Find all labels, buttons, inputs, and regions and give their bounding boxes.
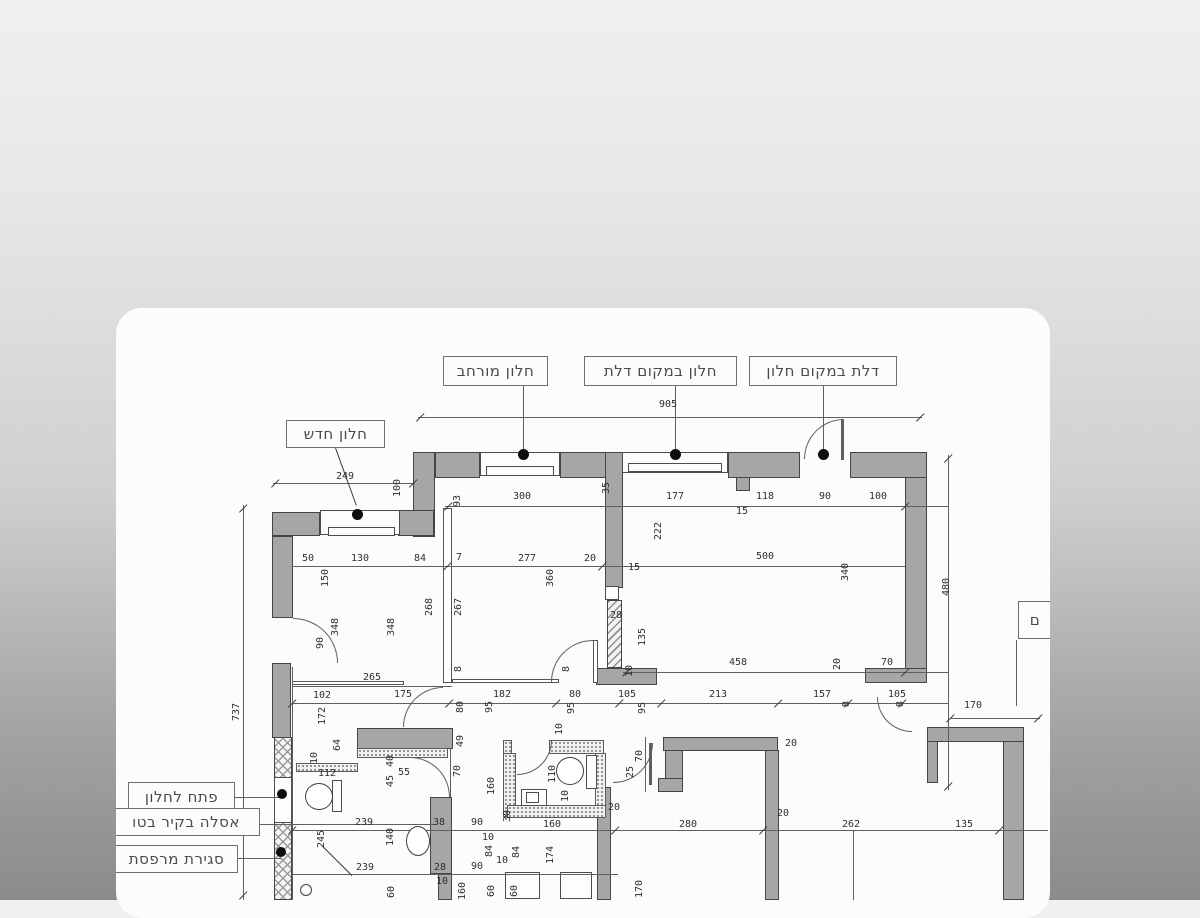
dimension-label: 348 bbox=[331, 618, 341, 636]
dimension-label: 170 bbox=[635, 880, 645, 898]
dimension-label: 90 bbox=[471, 862, 483, 872]
window-or-fixture bbox=[328, 527, 395, 536]
dimension-label: 268 bbox=[425, 598, 435, 616]
dimension-label: 500 bbox=[756, 552, 774, 562]
dimension-label: 10 bbox=[561, 790, 571, 802]
dimension-line bbox=[260, 824, 435, 825]
dimension-label: 80 bbox=[456, 701, 466, 713]
dimension-label: 15 bbox=[736, 507, 748, 517]
dimension-label: 245 bbox=[317, 830, 327, 848]
dimension-label: 28 bbox=[434, 863, 446, 873]
dimension-label: 10 bbox=[436, 877, 448, 887]
dimension-label: 25 bbox=[626, 766, 636, 778]
dimension-label: 265 bbox=[363, 673, 381, 683]
dimension-label: 150 bbox=[321, 569, 331, 587]
dimension-label: 249 bbox=[336, 472, 354, 482]
dimension-label: 360 bbox=[546, 569, 556, 587]
window-or-fixture bbox=[332, 780, 342, 812]
dimension-line bbox=[243, 505, 244, 900]
dimension-line bbox=[1016, 640, 1017, 706]
dimension-label: 60 bbox=[510, 885, 520, 897]
wall-segment bbox=[927, 741, 938, 783]
dimension-label: 49 bbox=[456, 735, 466, 747]
dimension-label: 110 bbox=[548, 765, 558, 783]
dimension-label: 100 bbox=[393, 479, 403, 497]
dimension-label: 135 bbox=[638, 628, 648, 646]
dimension-label: 10 bbox=[555, 723, 565, 735]
dimension-label: 20 bbox=[608, 803, 620, 813]
fixture bbox=[305, 783, 333, 810]
dimension-label: 737 bbox=[232, 703, 242, 721]
dimension-label: 458 bbox=[729, 658, 747, 668]
dimension-label: 10 bbox=[496, 856, 508, 866]
dimension-label: 239 bbox=[356, 863, 374, 873]
dimension-line bbox=[445, 506, 948, 507]
dimension-label: 30 bbox=[503, 810, 513, 822]
dimension-label: 50 bbox=[302, 554, 314, 564]
dimension-label: 277 bbox=[518, 554, 536, 564]
dimension-label: 70 bbox=[635, 750, 645, 762]
dimension-label: 95 bbox=[638, 702, 648, 714]
dimension-label: 8 bbox=[842, 701, 852, 707]
dimension-label: 8 bbox=[454, 666, 464, 672]
dimension-label: 100 bbox=[869, 492, 887, 502]
block-wall bbox=[357, 748, 448, 758]
partition-wall bbox=[292, 681, 404, 685]
wall-segment bbox=[272, 663, 291, 738]
dimension-label: 45 bbox=[386, 775, 396, 787]
dimension-label: 102 bbox=[313, 691, 331, 701]
dimension-label: 90 bbox=[471, 818, 483, 828]
dimension-line bbox=[238, 858, 281, 859]
window-or-fixture bbox=[274, 777, 292, 823]
floor-plan-drawing: 9052491009330017711890100153522215500340… bbox=[116, 308, 1050, 900]
dimension-label: 95 bbox=[567, 702, 577, 714]
dimension-label: 80 bbox=[569, 690, 581, 700]
dimension-line bbox=[235, 797, 281, 798]
wall-segment bbox=[658, 778, 683, 792]
block-wall bbox=[503, 740, 512, 754]
dimension-label: 35 bbox=[602, 482, 612, 494]
dimension-label: 172 bbox=[318, 707, 328, 725]
wall-segment bbox=[435, 452, 480, 478]
dimension-label: 105 bbox=[618, 690, 636, 700]
window-or-fixture bbox=[628, 463, 722, 472]
dimension-label: 90 bbox=[316, 637, 326, 649]
dimension-label: 140 bbox=[386, 828, 396, 846]
dimension-line bbox=[418, 417, 922, 418]
dimension-label: 15 bbox=[628, 563, 640, 573]
dimension-line bbox=[853, 830, 854, 900]
wall-segment bbox=[865, 668, 927, 683]
dimension-label: 222 bbox=[654, 522, 664, 540]
wall-segment bbox=[663, 737, 778, 751]
dimension-label: 20 bbox=[833, 658, 843, 670]
partition-wall bbox=[593, 640, 598, 683]
callout-dot bbox=[818, 449, 829, 460]
wall-segment bbox=[272, 512, 320, 536]
dimension-line bbox=[950, 718, 1040, 719]
dimension-label: 70 bbox=[881, 658, 893, 668]
dimension-line bbox=[523, 386, 524, 452]
dimension-label: 174 bbox=[546, 846, 556, 864]
door-arc bbox=[410, 757, 450, 797]
dimension-label: 182 bbox=[493, 690, 511, 700]
dimension-label: 8 bbox=[562, 666, 572, 672]
dimension-label: 10 bbox=[625, 665, 635, 677]
dimension-label: 160 bbox=[543, 820, 561, 830]
wall-segment bbox=[1003, 741, 1024, 900]
annotation-label: חלון במקום דלת bbox=[584, 356, 737, 386]
dimension-label: 135 bbox=[955, 820, 973, 830]
door-arc bbox=[551, 640, 593, 682]
wall-segment bbox=[736, 477, 750, 491]
wall-segment bbox=[765, 750, 779, 900]
dimension-label: 95 bbox=[485, 701, 495, 713]
dimension-label: 10 bbox=[482, 833, 494, 843]
dimension-label: 28 bbox=[610, 611, 622, 621]
wall-segment bbox=[398, 510, 434, 536]
dimension-label: 60 bbox=[487, 885, 497, 897]
fixture bbox=[300, 884, 312, 896]
annotation-label: סגירת מרפסת bbox=[116, 845, 238, 873]
callout-dot bbox=[276, 847, 286, 857]
dimension-label: 55 bbox=[398, 768, 410, 778]
dimension-line bbox=[450, 748, 451, 798]
dimension-label: 112 bbox=[318, 769, 336, 779]
callout-dot bbox=[670, 449, 681, 460]
dimension-label: 280 bbox=[679, 820, 697, 830]
annotation-label: דלת במקום חלון bbox=[749, 356, 897, 386]
dimension-line bbox=[292, 686, 452, 687]
annotation-label: חלון חדש bbox=[286, 420, 385, 448]
partition-wall bbox=[452, 679, 559, 683]
partition-wall bbox=[443, 508, 452, 683]
dimension-label: 118 bbox=[756, 492, 774, 502]
dimension-label: 20 bbox=[777, 809, 789, 819]
dimension-line bbox=[623, 672, 948, 673]
dimension-label: 348 bbox=[387, 618, 397, 636]
dimension-label: 213 bbox=[709, 690, 727, 700]
dimension-label: 905 bbox=[659, 400, 677, 410]
dimension-label: 267 bbox=[454, 598, 464, 616]
wall-segment bbox=[728, 452, 800, 478]
dimension-label: 84 bbox=[485, 845, 495, 857]
dimension-label: 300 bbox=[513, 492, 531, 502]
wall-segment bbox=[927, 727, 1024, 742]
dimension-label: 38 bbox=[433, 818, 445, 828]
wall-segment bbox=[605, 452, 623, 588]
dimension-label: 60 bbox=[387, 886, 397, 898]
dimension-label: 70 bbox=[453, 765, 463, 777]
dimension-label: 20 bbox=[785, 739, 797, 749]
dimension-label: 93 bbox=[453, 495, 463, 507]
dimension-label: 340 bbox=[841, 563, 851, 581]
dimension-label: 160 bbox=[458, 882, 468, 900]
window-or-fixture bbox=[560, 872, 592, 899]
block-wall bbox=[549, 740, 604, 754]
dimension-label: 20 bbox=[584, 554, 596, 564]
dimension-label: 170 bbox=[964, 701, 982, 711]
window-or-fixture bbox=[586, 755, 597, 789]
dimension-line bbox=[292, 566, 905, 567]
dimension-label: 7 bbox=[456, 553, 462, 563]
dimension-line bbox=[292, 874, 618, 875]
annotation-label: חלון מורחב bbox=[443, 356, 548, 386]
dimension-label: 10 bbox=[310, 752, 320, 764]
dimension-label: 157 bbox=[813, 690, 831, 700]
dimension-label: 262 bbox=[842, 820, 860, 830]
dimension-label: 8 bbox=[896, 701, 906, 707]
dimension-label: 160 bbox=[487, 777, 497, 795]
dimension-label: 40 bbox=[386, 755, 396, 767]
dimension-label: 84 bbox=[512, 846, 522, 858]
window-or-fixture bbox=[605, 586, 619, 600]
wall-segment bbox=[850, 452, 927, 478]
dimension-label: 177 bbox=[666, 492, 684, 502]
dimension-label: 64 bbox=[333, 739, 343, 751]
annotation-label: ם bbox=[1018, 601, 1050, 639]
dimension-label: 175 bbox=[394, 690, 412, 700]
floor-plan-card: 9052491009330017711890100153522215500340… bbox=[116, 308, 1050, 918]
fixture bbox=[556, 757, 584, 785]
wall-segment bbox=[272, 536, 293, 618]
leader-line bbox=[321, 845, 352, 876]
insulated-wall bbox=[274, 737, 292, 778]
dimension-label: 239 bbox=[355, 818, 373, 828]
callout-dot bbox=[277, 789, 287, 799]
dimension-label: 90 bbox=[819, 492, 831, 502]
dimension-line bbox=[292, 830, 1048, 831]
fixture bbox=[406, 826, 430, 856]
dimension-label: 130 bbox=[351, 554, 369, 564]
block-wall bbox=[507, 805, 606, 818]
dimension-label: 480 bbox=[942, 578, 952, 596]
window-or-fixture bbox=[526, 792, 539, 803]
callout-dot bbox=[518, 449, 529, 460]
dimension-line bbox=[675, 386, 676, 452]
window-or-fixture bbox=[486, 466, 554, 476]
wall-segment bbox=[665, 750, 683, 779]
dimension-line bbox=[948, 455, 949, 790]
callout-dot bbox=[352, 509, 363, 520]
dimension-label: 84 bbox=[414, 554, 426, 564]
annotation-label: אסלה בקיר בטו bbox=[116, 808, 260, 836]
dimension-label: 105 bbox=[888, 690, 906, 700]
wall-segment bbox=[357, 728, 453, 749]
